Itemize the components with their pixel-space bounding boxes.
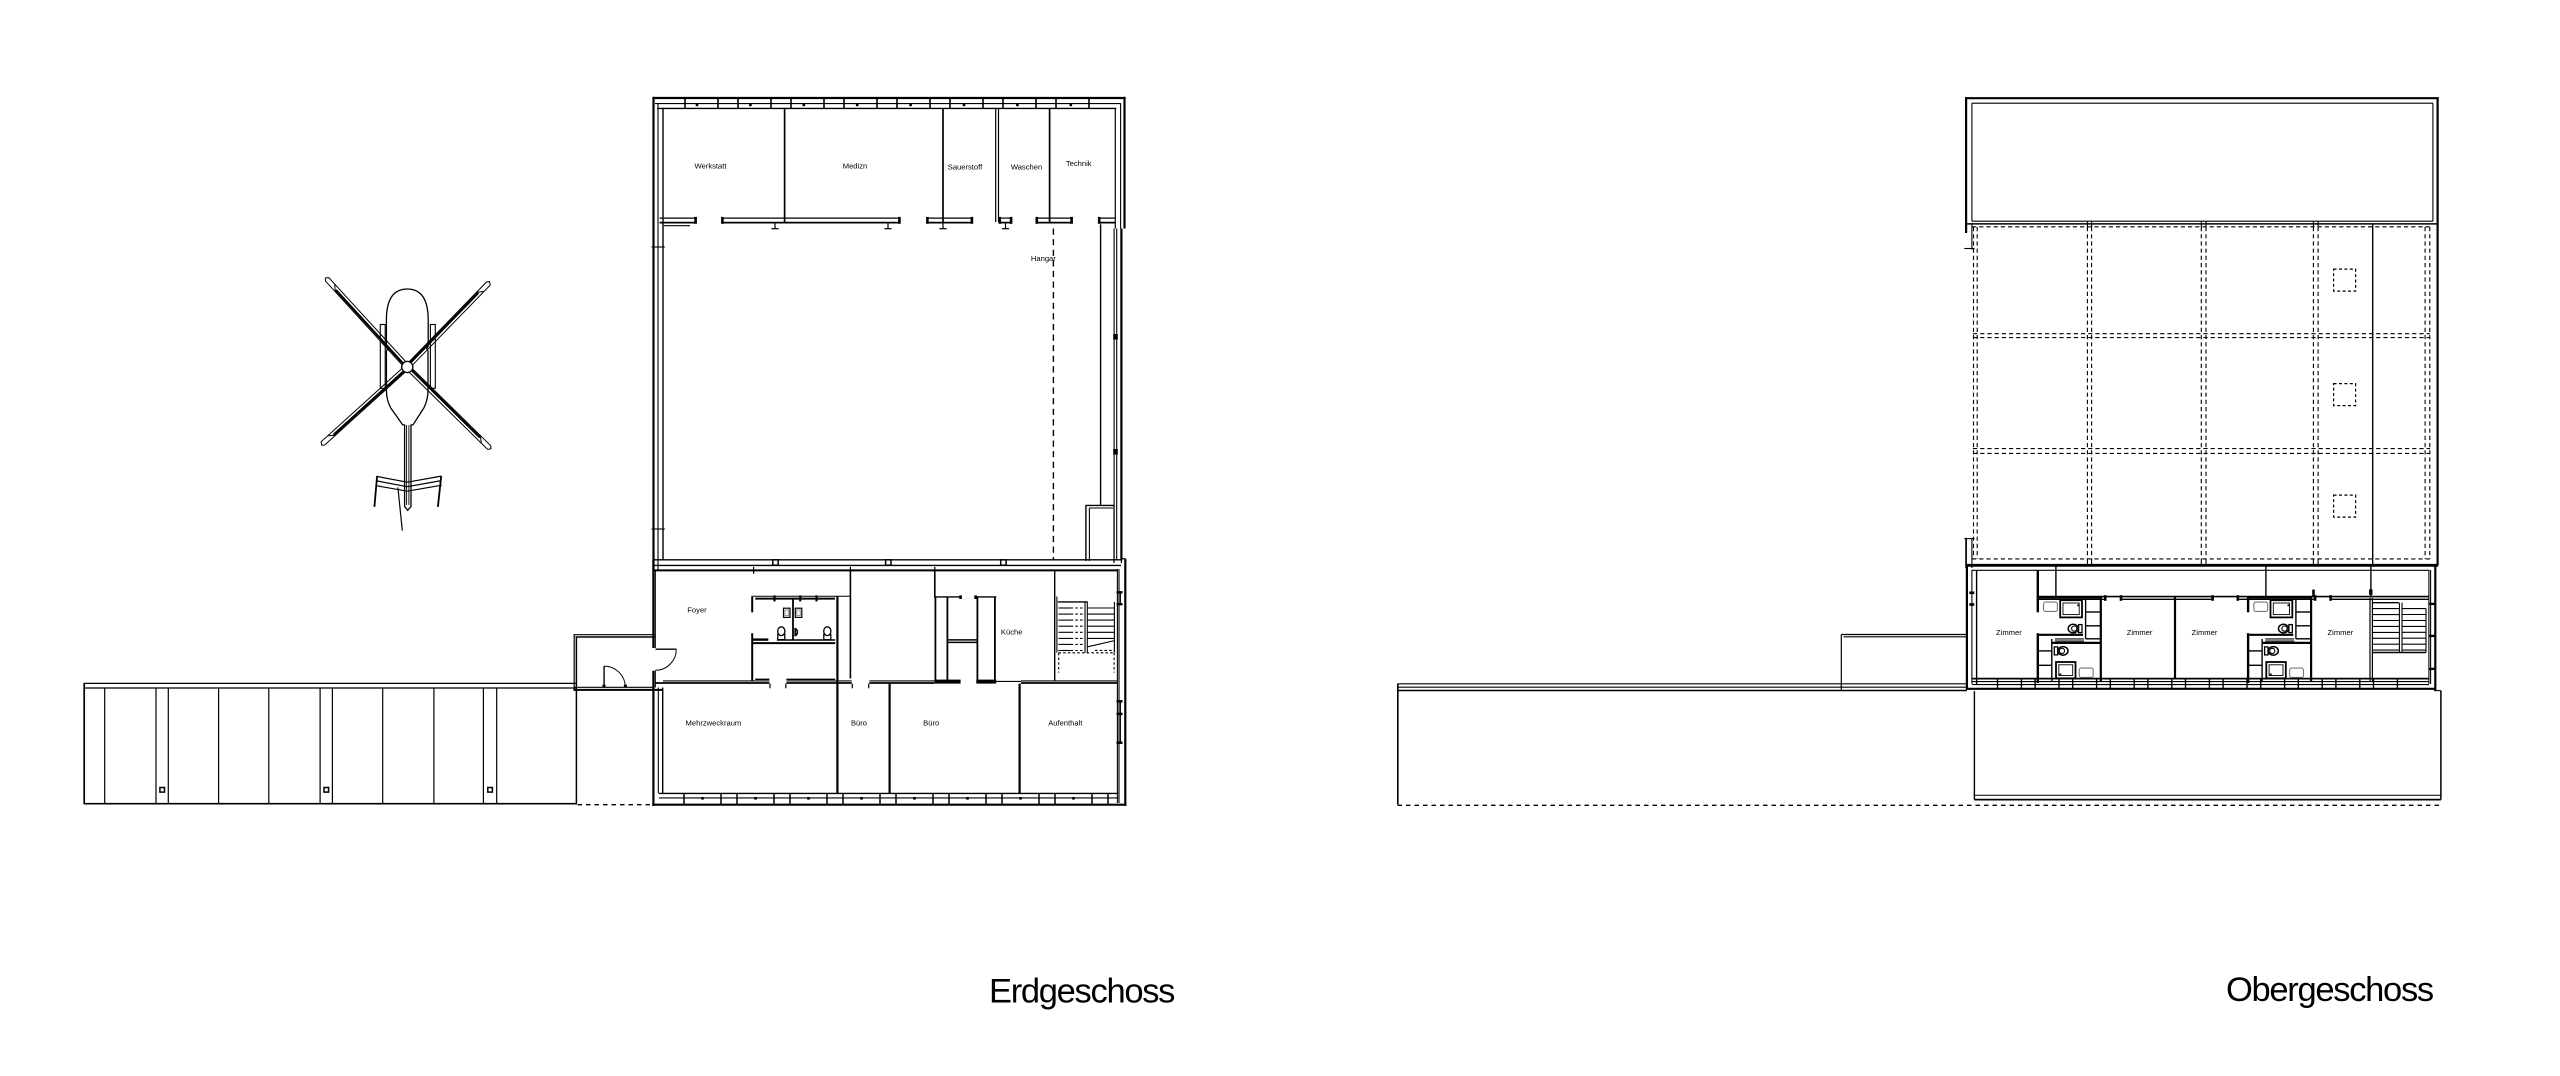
svg-text:Zimmer: Zimmer [2328,628,2354,637]
svg-text:Waschen: Waschen [1011,163,1042,172]
svg-text:Sauerstoff: Sauerstoff [948,163,983,172]
svg-text:Foyer: Foyer [687,606,707,615]
svg-text:Zimmer: Zimmer [2192,628,2218,637]
svg-text:Aufenthalt: Aufenthalt [1048,719,1083,728]
svg-text:Hangar: Hangar [1031,254,1056,263]
svg-text:Zimmer: Zimmer [1996,628,2022,637]
svg-text:Büro: Büro [851,719,867,728]
svg-text:Werkstatt: Werkstatt [695,162,728,171]
svg-text:Büro: Büro [923,719,939,728]
svg-text:Technik: Technik [1066,159,1092,168]
svg-text:Küche: Küche [1001,627,1023,636]
svg-text:Mehrzweckraum: Mehrzweckraum [686,719,742,728]
svg-text:Medizn: Medizn [843,162,867,171]
svg-text:Zimmer: Zimmer [2127,628,2153,637]
svg-text:Erdgeschoss: Erdgeschoss [989,973,1174,1011]
svg-text:Obergeschoss: Obergeschoss [2226,971,2433,1009]
